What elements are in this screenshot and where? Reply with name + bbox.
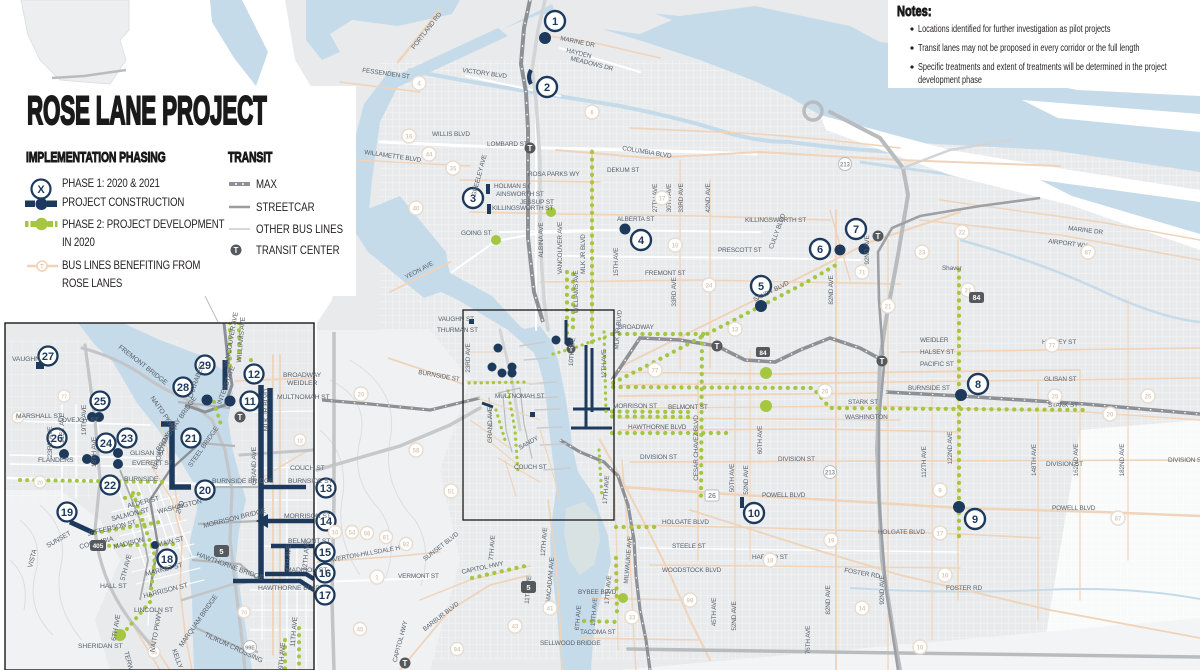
svg-text:VAUGHN: VAUGHN bbox=[12, 356, 40, 363]
svg-text:18: 18 bbox=[767, 559, 774, 565]
svg-text:20: 20 bbox=[822, 390, 829, 396]
svg-text:41: 41 bbox=[547, 607, 554, 613]
svg-text:54: 54 bbox=[349, 531, 356, 537]
svg-text:MULTNOMAH ST: MULTNOMAH ST bbox=[495, 393, 545, 400]
svg-text:4: 4 bbox=[638, 235, 645, 247]
svg-text:PHASE 1: 2020 & 2021: PHASE 1: 2020 & 2021 bbox=[62, 177, 160, 190]
svg-text:MORRISON ST: MORRISON ST bbox=[613, 403, 657, 410]
svg-text:BURNSIDE BRIDGE: BURNSIDE BRIDGE bbox=[212, 478, 274, 485]
svg-text:LINCOLN ST: LINCOLN ST bbox=[134, 607, 173, 614]
svg-text:182ND AVE: 182ND AVE bbox=[1119, 444, 1126, 477]
svg-text:10: 10 bbox=[942, 574, 949, 580]
svg-text:24: 24 bbox=[706, 284, 713, 290]
svg-text:84: 84 bbox=[759, 350, 767, 357]
svg-text:T: T bbox=[40, 265, 44, 271]
svg-text:18TH AVE: 18TH AVE bbox=[91, 436, 98, 467]
svg-text:HALSEY ST: HALSEY ST bbox=[920, 349, 954, 356]
svg-text:77: 77 bbox=[1049, 344, 1056, 350]
svg-text:94: 94 bbox=[454, 648, 461, 654]
svg-text:56: 56 bbox=[364, 532, 371, 538]
svg-text:TACOMA ST: TACOMA ST bbox=[580, 629, 616, 636]
svg-text:92ND AVE: 92ND AVE bbox=[879, 575, 886, 604]
svg-text:IN 2020: IN 2020 bbox=[62, 236, 95, 249]
svg-text:8: 8 bbox=[975, 379, 981, 391]
svg-text:TRANSIT CENTER: TRANSIT CENTER bbox=[256, 244, 340, 257]
svg-text:HAWTHORNE BLVD: HAWTHORNE BLVD bbox=[628, 424, 687, 431]
svg-text:24: 24 bbox=[100, 438, 113, 450]
svg-text:Locations identified for furth: Locations identified for further investi… bbox=[918, 23, 1111, 34]
svg-text:HOLGATE BLVD: HOLGATE BLVD bbox=[662, 519, 709, 526]
svg-text:ALBINA AVE: ALBINA AVE bbox=[538, 222, 545, 257]
svg-text:25: 25 bbox=[94, 396, 106, 408]
svg-text:VERMONT ST: VERMONT ST bbox=[398, 573, 439, 580]
svg-text:162ND AVE: 162ND AVE bbox=[1073, 444, 1080, 477]
svg-text:28: 28 bbox=[177, 382, 189, 394]
svg-text:KILLINGSWORTH ST: KILLINGSWORTH ST bbox=[745, 217, 806, 224]
svg-text:POWELL BLVD: POWELL BLVD bbox=[1052, 505, 1096, 512]
svg-text:87: 87 bbox=[1085, 251, 1092, 257]
svg-text:112TH AVE: 112TH AVE bbox=[921, 446, 928, 478]
svg-text:MLK JR BLVD: MLK JR BLVD bbox=[263, 389, 270, 431]
svg-text:213: 213 bbox=[840, 163, 851, 169]
svg-text:T: T bbox=[715, 342, 720, 351]
svg-text:DEKUM ST: DEKUM ST bbox=[607, 167, 639, 174]
svg-text:OTHER BUS LINES: OTHER BUS LINES bbox=[256, 223, 343, 236]
svg-text:CESAR CHAVEZ BLVD: CESAR CHAVEZ BLVD bbox=[693, 415, 700, 481]
svg-text:X: X bbox=[37, 184, 45, 196]
svg-text:BELMONT ST: BELMONT ST bbox=[668, 404, 708, 411]
svg-text:42ND AVE: 42ND AVE bbox=[705, 183, 712, 212]
svg-text:23RD AVE: 23RD AVE bbox=[47, 426, 54, 458]
svg-text:43: 43 bbox=[512, 625, 519, 631]
svg-text:development phase: development phase bbox=[918, 74, 982, 85]
svg-text:21ST AVE: 21ST AVE bbox=[59, 412, 66, 442]
svg-text:PRESCOTT ST: PRESCOTT ST bbox=[718, 247, 762, 254]
svg-text:99E: 99E bbox=[245, 646, 255, 652]
svg-text:50TH AVE: 50TH AVE bbox=[729, 464, 736, 493]
svg-text:THURMAN ST: THURMAN ST bbox=[437, 327, 478, 334]
svg-text:TRANSIT: TRANSIT bbox=[228, 149, 273, 165]
svg-text:BURNSIDE ST: BURNSIDE ST bbox=[288, 478, 333, 485]
svg-text:19TH AVE: 19TH AVE bbox=[81, 404, 88, 435]
svg-text:17: 17 bbox=[319, 590, 331, 602]
svg-text:33RD AVE: 33RD AVE bbox=[671, 277, 678, 306]
svg-text:ROSA PARKS WY: ROSA PARKS WY bbox=[528, 171, 580, 178]
svg-text:MULTNOMAH ST: MULTNOMAH ST bbox=[277, 394, 330, 401]
svg-text:WEIDLER: WEIDLER bbox=[920, 337, 949, 344]
svg-text:SELLWOOD BRIDGE: SELLWOOD BRIDGE bbox=[540, 640, 601, 647]
svg-text:10: 10 bbox=[672, 244, 679, 250]
svg-text:Transit lanes may not be propo: Transit lanes may not be proposed in eve… bbox=[918, 42, 1140, 53]
svg-text:16: 16 bbox=[406, 135, 413, 141]
svg-text:T: T bbox=[880, 357, 885, 366]
svg-text:52ND AVE: 52ND AVE bbox=[743, 465, 750, 494]
svg-text:17: 17 bbox=[937, 532, 944, 538]
svg-text:35: 35 bbox=[450, 167, 457, 173]
svg-text:58: 58 bbox=[413, 449, 420, 455]
svg-text:23RD AVE: 23RD AVE bbox=[465, 343, 472, 372]
svg-text:GRAND AVE: GRAND AVE bbox=[487, 407, 494, 443]
svg-text:IMPLEMENTATION PHASING: IMPLEMENTATION PHASING bbox=[26, 149, 166, 165]
svg-text:MAX: MAX bbox=[256, 178, 277, 191]
svg-text:GOING ST: GOING ST bbox=[461, 230, 492, 237]
svg-text:22: 22 bbox=[104, 480, 116, 492]
svg-text:VANCOUVER AVE: VANCOUVER AVE bbox=[557, 222, 564, 274]
svg-text:T: T bbox=[876, 232, 881, 241]
svg-text:5: 5 bbox=[526, 583, 530, 592]
svg-text:DIVISION ST: DIVISION ST bbox=[1168, 457, 1200, 464]
svg-text:25: 25 bbox=[1145, 395, 1152, 401]
svg-text:ROSE LANES: ROSE LANES bbox=[62, 277, 122, 290]
svg-text:27: 27 bbox=[42, 351, 54, 363]
svg-text:60TH AVE: 60TH AVE bbox=[757, 426, 764, 455]
svg-text:COUCH ST: COUCH ST bbox=[514, 464, 547, 471]
svg-text:AINSWORTH ST: AINSWORTH ST bbox=[496, 191, 544, 198]
svg-text:T: T bbox=[238, 413, 243, 422]
svg-text:WILLIS BLVD: WILLIS BLVD bbox=[432, 131, 470, 138]
svg-text:BROADWAY: BROADWAY bbox=[283, 372, 322, 379]
svg-text:LOMBARD ST: LOMBARD ST bbox=[487, 141, 528, 148]
svg-text:92ND AVE: 92ND AVE bbox=[864, 235, 871, 264]
svg-text:14: 14 bbox=[859, 607, 866, 613]
svg-text:STARK ST: STARK ST bbox=[848, 399, 878, 406]
svg-text:122ND AVE: 122ND AVE bbox=[947, 432, 954, 465]
svg-text:84: 84 bbox=[973, 295, 981, 302]
svg-text:405: 405 bbox=[93, 543, 104, 550]
svg-text:52ND AVE: 52ND AVE bbox=[731, 601, 738, 630]
svg-text:10: 10 bbox=[748, 508, 760, 520]
svg-text:9: 9 bbox=[972, 514, 978, 526]
svg-text:76TH AVE: 76TH AVE bbox=[805, 626, 812, 655]
svg-text:DIVISION ST: DIVISION ST bbox=[778, 456, 815, 463]
svg-text:99: 99 bbox=[687, 599, 694, 605]
svg-text:VAUGHN ST: VAUGHN ST bbox=[438, 316, 474, 323]
svg-text:20: 20 bbox=[37, 481, 43, 487]
svg-text:MLK JR BLVD: MLK JR BLVD bbox=[580, 234, 587, 274]
svg-text:POWELL BLVD: POWELL BLVD bbox=[762, 492, 806, 499]
svg-text:HOLMAN ST: HOLMAN ST bbox=[494, 183, 531, 190]
svg-text:SHERIDAN ST: SHERIDAN ST bbox=[78, 643, 123, 650]
svg-text:71: 71 bbox=[859, 271, 866, 277]
svg-text:BURNSIDE: BURNSIDE bbox=[124, 476, 159, 483]
svg-text:DIVISION ST: DIVISION ST bbox=[640, 454, 677, 461]
svg-text:MORRISON ST: MORRISON ST bbox=[284, 513, 331, 520]
svg-text:Specific treatments and extent: Specific treatments and extent of treatm… bbox=[918, 61, 1167, 72]
svg-text:WASHINGTON: WASHINGTON bbox=[845, 414, 888, 421]
svg-text:GLISAN ST: GLISAN ST bbox=[1044, 376, 1077, 383]
svg-text:12TH AVE: 12TH AVE bbox=[601, 350, 608, 379]
svg-text:10: 10 bbox=[332, 531, 339, 537]
svg-text:2: 2 bbox=[544, 82, 550, 94]
svg-text:44: 44 bbox=[426, 153, 433, 159]
svg-text:7: 7 bbox=[853, 224, 859, 236]
svg-text:25: 25 bbox=[1052, 395, 1059, 401]
svg-text:WILLIAMS AVE: WILLIAMS AVE bbox=[573, 270, 580, 313]
svg-text:ROSE LANE PROJECT: ROSE LANE PROJECT bbox=[27, 88, 267, 132]
svg-text:WOODSTOCK BLVD: WOODSTOCK BLVD bbox=[662, 567, 722, 574]
svg-text:HAWTHORNE BLVD: HAWTHORNE BLVD bbox=[258, 585, 320, 592]
svg-text:Shaver: Shaver bbox=[942, 265, 963, 272]
svg-text:FOSTER RD: FOSTER RD bbox=[946, 585, 983, 592]
svg-text:40: 40 bbox=[413, 207, 420, 213]
svg-text:11: 11 bbox=[244, 396, 256, 408]
svg-text:20: 20 bbox=[358, 393, 365, 399]
svg-text:20: 20 bbox=[199, 485, 211, 497]
svg-text:21: 21 bbox=[185, 433, 197, 445]
svg-text:BROADWAY: BROADWAY bbox=[618, 324, 655, 331]
svg-text:12: 12 bbox=[248, 369, 260, 381]
svg-text:12: 12 bbox=[732, 328, 739, 334]
svg-text:20: 20 bbox=[1107, 413, 1114, 419]
svg-text:HALL ST: HALL ST bbox=[100, 583, 127, 590]
svg-text:PHASE 2: PROJECT DEVELOPMENT: PHASE 2: PROJECT DEVELOPMENT bbox=[62, 218, 225, 231]
svg-text:148TH AVE: 148TH AVE bbox=[1031, 444, 1038, 476]
svg-text:PROJECT CONSTRUCTION: PROJECT CONSTRUCTION bbox=[62, 196, 184, 209]
svg-text:77: 77 bbox=[652, 369, 659, 375]
svg-text:26: 26 bbox=[708, 493, 716, 500]
svg-text:82ND AVE: 82ND AVE bbox=[825, 585, 832, 614]
svg-text:33: 33 bbox=[629, 616, 636, 622]
svg-text:KILLINGSWORTH ST: KILLINGSWORTH ST bbox=[492, 205, 553, 212]
svg-text:87: 87 bbox=[1115, 517, 1122, 523]
svg-text:92: 92 bbox=[403, 543, 410, 549]
svg-text:STEELE ST: STEELE ST bbox=[672, 543, 706, 550]
svg-text:T: T bbox=[234, 246, 239, 255]
svg-text:17: 17 bbox=[659, 197, 666, 203]
svg-text:10: 10 bbox=[917, 646, 924, 652]
svg-text:45TH AVE: 45TH AVE bbox=[711, 598, 718, 627]
svg-text:82ND AVE: 82ND AVE bbox=[828, 275, 835, 304]
svg-text:45: 45 bbox=[357, 628, 364, 634]
svg-text:FLANDERS: FLANDERS bbox=[38, 457, 74, 464]
svg-text:T: T bbox=[403, 659, 408, 668]
svg-text:ALBERTA ST: ALBERTA ST bbox=[617, 216, 654, 223]
svg-text:BUS LINES BENEFITING FROM: BUS LINES BENEFITING FROM bbox=[62, 259, 200, 272]
svg-text:77: 77 bbox=[61, 395, 67, 401]
svg-text:15TH AVE: 15TH AVE bbox=[613, 248, 620, 277]
svg-text:T: T bbox=[528, 144, 533, 153]
svg-text:WEIDLER: WEIDLER bbox=[287, 380, 317, 387]
svg-text:Notes:: Notes: bbox=[897, 2, 932, 19]
svg-text:1: 1 bbox=[552, 16, 558, 28]
svg-text:MARSHALL ST: MARSHALL ST bbox=[16, 413, 62, 420]
svg-text:21: 21 bbox=[885, 305, 892, 311]
svg-text:COUCH ST: COUCH ST bbox=[290, 465, 325, 472]
svg-text:33RD AVE: 33RD AVE bbox=[678, 183, 685, 212]
svg-text:12: 12 bbox=[297, 439, 303, 445]
svg-text:STREETCAR: STREETCAR bbox=[256, 201, 315, 214]
svg-text:19: 19 bbox=[828, 539, 835, 545]
svg-text:70: 70 bbox=[241, 611, 247, 617]
svg-text:BURNSIDE ST: BURNSIDE ST bbox=[908, 385, 950, 392]
svg-text:22: 22 bbox=[959, 231, 966, 237]
svg-text:61: 61 bbox=[383, 536, 390, 542]
svg-text:HOLGATE BLVD: HOLGATE BLVD bbox=[878, 529, 925, 536]
svg-text:23: 23 bbox=[919, 251, 926, 257]
svg-text:51: 51 bbox=[448, 490, 455, 496]
svg-text:19: 19 bbox=[61, 507, 73, 519]
svg-text:PACIFIC ST: PACIFIC ST bbox=[920, 361, 954, 368]
svg-text:23: 23 bbox=[121, 433, 133, 445]
svg-text:FREMONT ST: FREMONT ST bbox=[645, 270, 686, 277]
svg-text:5: 5 bbox=[219, 547, 223, 556]
svg-text:6: 6 bbox=[817, 244, 823, 256]
svg-text:213: 213 bbox=[825, 471, 836, 477]
